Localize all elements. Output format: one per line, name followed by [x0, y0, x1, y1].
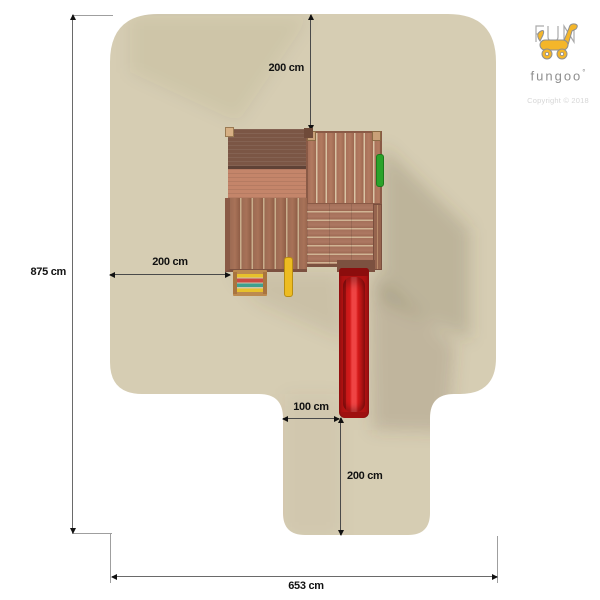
safety-zone [0, 0, 600, 600]
dimension-label-total-width: 653 cm [276, 580, 336, 592]
dimension-line-total-depth [72, 15, 73, 533]
ladder-post [233, 272, 237, 294]
access-ladder [233, 270, 267, 296]
climbing-handle-green [376, 154, 384, 187]
platform-top-right [306, 131, 382, 205]
dimension-label-side-clearance: 200 cm [140, 256, 200, 268]
dimension-label-top-clearance: 200 cm [250, 62, 304, 74]
dimension-line-total-width [112, 576, 497, 577]
brand-name-text: fungoo [531, 68, 583, 83]
slide [339, 268, 369, 418]
slide-entry [340, 268, 368, 276]
ladder-post [263, 272, 267, 294]
dimension-line-slide-offset [283, 418, 339, 419]
roof-upper-slope [228, 129, 307, 169]
dimension-line-side-clearance [110, 274, 230, 275]
corner-post [225, 127, 234, 137]
slide-channel [343, 277, 365, 412]
dimension-line-top-clearance [310, 15, 311, 130]
copyright-text: Copyright © 2018 [520, 96, 596, 105]
brand-trademark: ° [582, 68, 585, 77]
extension-line-bottom-left [72, 533, 112, 534]
dimension-label-slide-offset: 100 cm [283, 401, 339, 413]
platform-bottom-left [225, 198, 307, 272]
fungoo-logo: fungoo° Copyright © 2018 [520, 16, 596, 105]
corner-post [304, 128, 313, 138]
ladder-rungs [236, 274, 264, 292]
corner-post [372, 131, 381, 141]
slide-end [341, 412, 367, 418]
dimension-line-slide-runout [340, 418, 341, 535]
extension-line-top [72, 15, 113, 16]
fireman-pole [284, 257, 293, 297]
diagram-canvas: 200 cm 875 cm 200 cm 100 cm 200 cm 653 c… [0, 0, 600, 600]
fungoo-animal-icon [530, 16, 586, 62]
platform-bottom-right [307, 204, 373, 267]
dimension-label-total-depth: 875 cm [22, 266, 66, 278]
dimension-label-slide-runout: 200 cm [347, 470, 383, 482]
brand-name: fungoo° [520, 68, 596, 83]
ladder-rail [233, 292, 267, 296]
